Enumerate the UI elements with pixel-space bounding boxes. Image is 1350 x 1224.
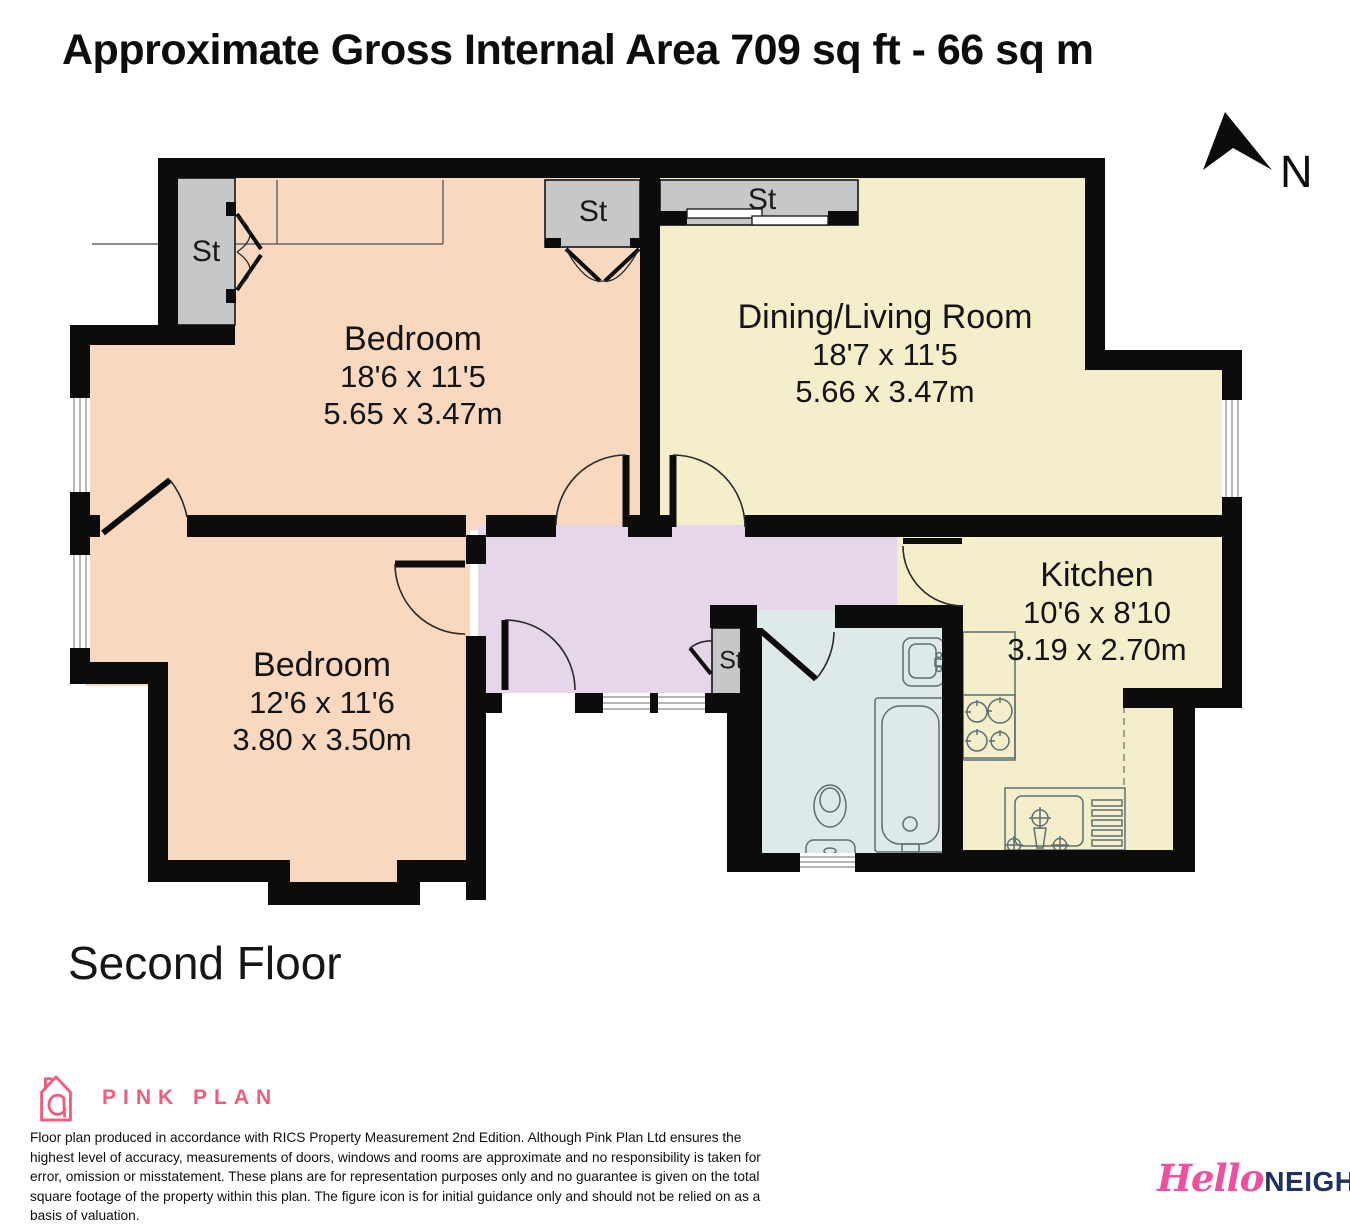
- producer-name: PINK PLAN: [102, 1086, 278, 1110]
- window-living-room: [1222, 400, 1242, 497]
- room-dims-imperial: 18'6 x 11'5: [323, 358, 502, 395]
- producer-logo: PINK PLAN: [32, 1070, 278, 1126]
- pink-plan-house-icon: [32, 1070, 80, 1126]
- window-hallway-b: [658, 693, 705, 713]
- room-dims-metric: 3.19 x 2.70m: [1007, 631, 1186, 668]
- room-dims-imperial: 10'6 x 8'10: [1007, 594, 1186, 631]
- room-name: Dining/Living Room: [738, 298, 1033, 336]
- room-dims-imperial: 18'7 x 11'5: [738, 336, 1033, 373]
- room-dims-imperial: 12'6 x 11'6: [232, 684, 411, 721]
- room-dims-metric: 3.80 x 3.50m: [232, 721, 411, 758]
- room-label-dining-living: Dining/Living Room 18'7 x 11'5 5.66 x 3.…: [738, 298, 1033, 410]
- room-label-bedroom-2: Bedroom 12'6 x 11'6 3.80 x 3.50m: [232, 646, 411, 758]
- agency-logo: Hello NEIGHBOUR: [1157, 1156, 1350, 1200]
- window-hallway-a: [603, 693, 650, 713]
- room-dims-metric: 5.65 x 3.47m: [323, 395, 502, 432]
- floor-name: Second Floor: [68, 936, 342, 990]
- page-title: Approximate Gross Internal Area 709 sq f…: [62, 26, 1094, 75]
- storage-label-2: St: [579, 195, 607, 229]
- storage-label-3: St: [748, 183, 776, 217]
- window-bedroom-1: [70, 398, 90, 492]
- window-bedroom-2: [70, 555, 90, 648]
- room-name: Kitchen: [1007, 556, 1186, 594]
- room-name: Bedroom: [323, 320, 502, 358]
- window-bathroom: [800, 853, 855, 872]
- north-label: N: [1280, 146, 1313, 198]
- floorplan-page: Approximate Gross Internal Area 709 sq f…: [0, 0, 1350, 1224]
- room-label-kitchen: Kitchen 10'6 x 8'10 3.19 x 2.70m: [1007, 556, 1186, 668]
- agency-name-caps: NEIGHBOUR: [1264, 1166, 1350, 1198]
- disclaimer-text: Floor plan produced in accordance with R…: [30, 1128, 778, 1224]
- storage-label-4: St: [719, 647, 743, 676]
- north-arrow-icon: [1203, 112, 1272, 170]
- agency-name-script: Hello: [1157, 1156, 1263, 1200]
- window-hallway-left: [502, 693, 575, 713]
- room-label-bedroom-1: Bedroom 18'6 x 11'5 5.65 x 3.47m: [323, 320, 502, 432]
- room-name: Bedroom: [232, 646, 411, 684]
- storage-label-1: St: [192, 235, 220, 269]
- room-dims-metric: 5.66 x 3.47m: [738, 373, 1033, 410]
